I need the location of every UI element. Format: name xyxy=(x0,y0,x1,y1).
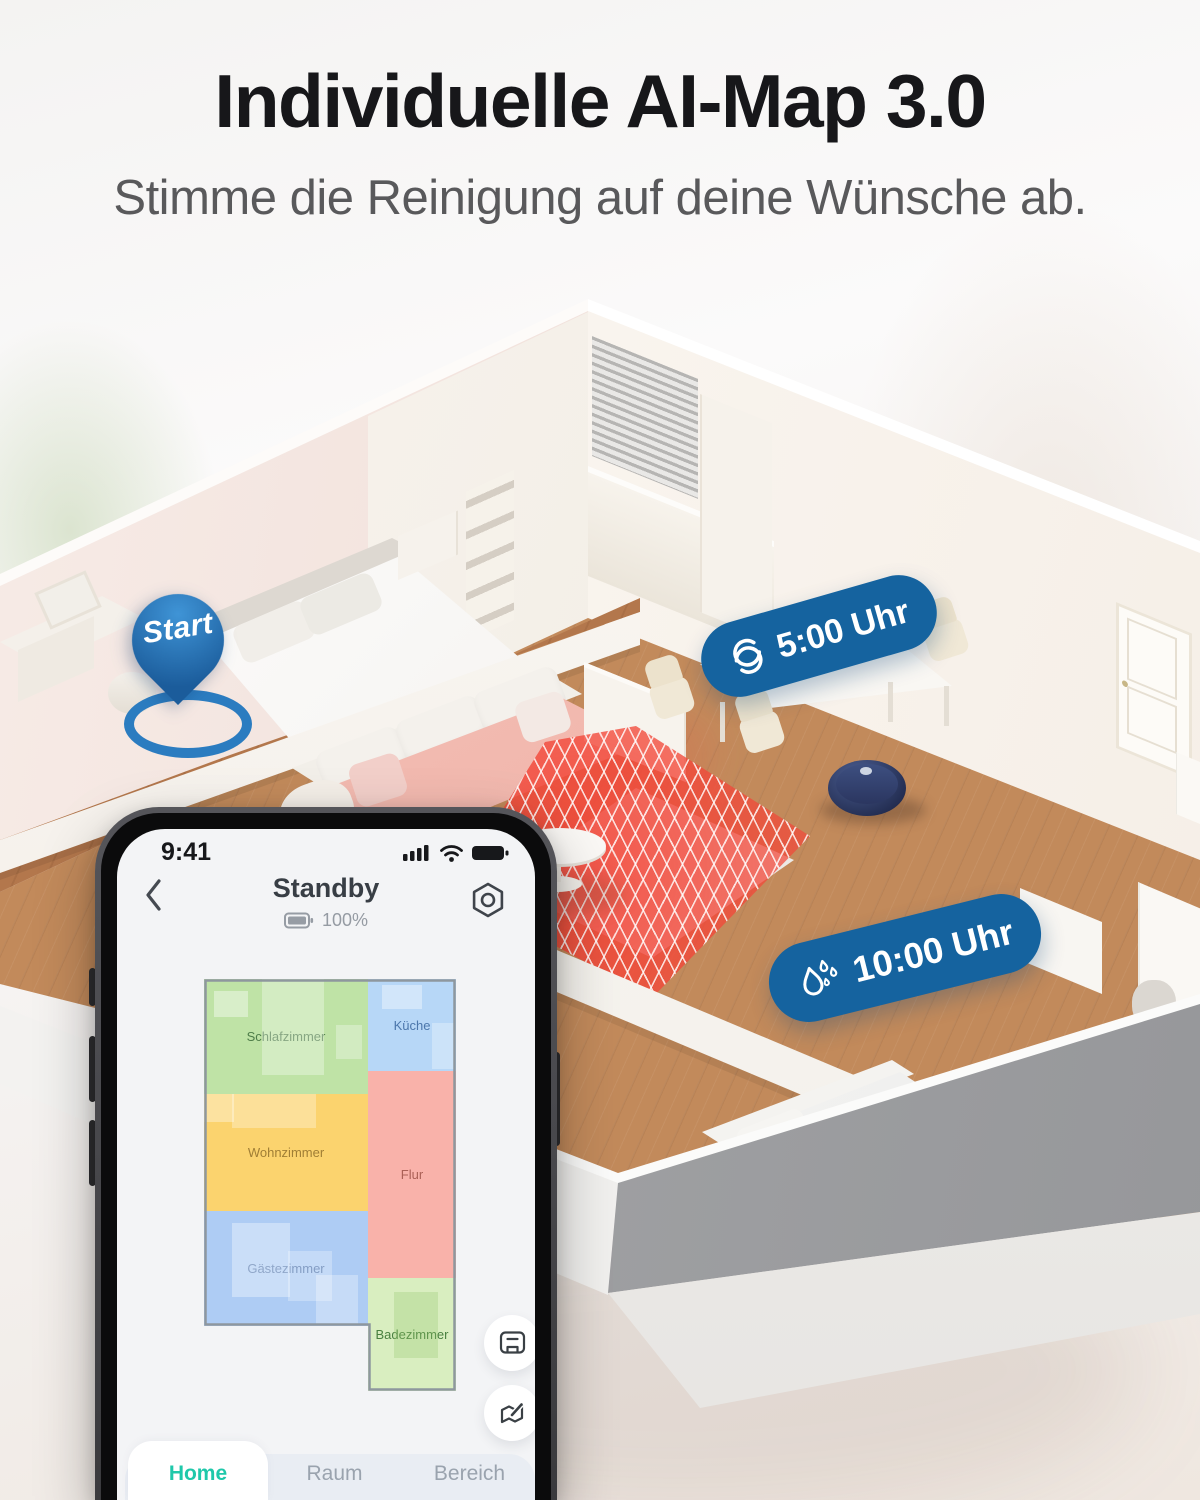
map-manage-icon xyxy=(499,1330,526,1356)
kitchen-tall-cabinet xyxy=(700,394,772,641)
header: Individuelle AI-Map 3.0 Stimme die Reini… xyxy=(0,0,1200,226)
map-outline xyxy=(204,979,456,1391)
status-bar-time: 9:41 xyxy=(161,838,211,867)
page-subtitle: Stimme die Reinigung auf deine Wünsche a… xyxy=(0,170,1200,226)
table-leg xyxy=(944,686,949,726)
door-knob xyxy=(1122,679,1128,687)
floor-map: Schlafzimmer Küche Wohnzimmer Flur xyxy=(204,979,456,1391)
edit-map-button[interactable] xyxy=(484,1385,535,1441)
tab-bereich[interactable]: Bereich xyxy=(402,1462,535,1486)
marketing-page: Individuelle AI-Map 3.0 Stimme die Reini… xyxy=(0,0,1200,1500)
page-title: Individuelle AI-Map 3.0 xyxy=(0,58,1200,144)
battery-icon xyxy=(472,843,509,863)
suction-swirl-icon xyxy=(724,633,771,680)
robot-button xyxy=(860,767,872,775)
tab-raum[interactable]: Raum xyxy=(272,1462,397,1486)
phone-mockup: 9:41 xyxy=(95,807,557,1500)
table-leg xyxy=(720,702,725,742)
signal-icon xyxy=(403,843,431,863)
table-leg xyxy=(888,682,893,722)
tab-home-label[interactable]: Home xyxy=(128,1462,268,1486)
wifi-icon xyxy=(438,843,465,863)
battery-level-icon xyxy=(284,912,314,929)
water-drops-icon xyxy=(792,953,847,1005)
hall-dresser xyxy=(1176,752,1200,825)
phone-bezel: 9:41 xyxy=(101,813,551,1500)
entry-door xyxy=(1116,602,1192,779)
edit-map-icon xyxy=(498,1401,526,1426)
app-screen: 9:41 xyxy=(117,829,535,1500)
start-ring xyxy=(124,690,252,758)
status-bar-icons xyxy=(403,843,509,863)
map-manage-button[interactable] xyxy=(484,1315,535,1371)
battery-percentage: 100% xyxy=(322,910,368,931)
battery-status: 100% xyxy=(117,910,535,931)
